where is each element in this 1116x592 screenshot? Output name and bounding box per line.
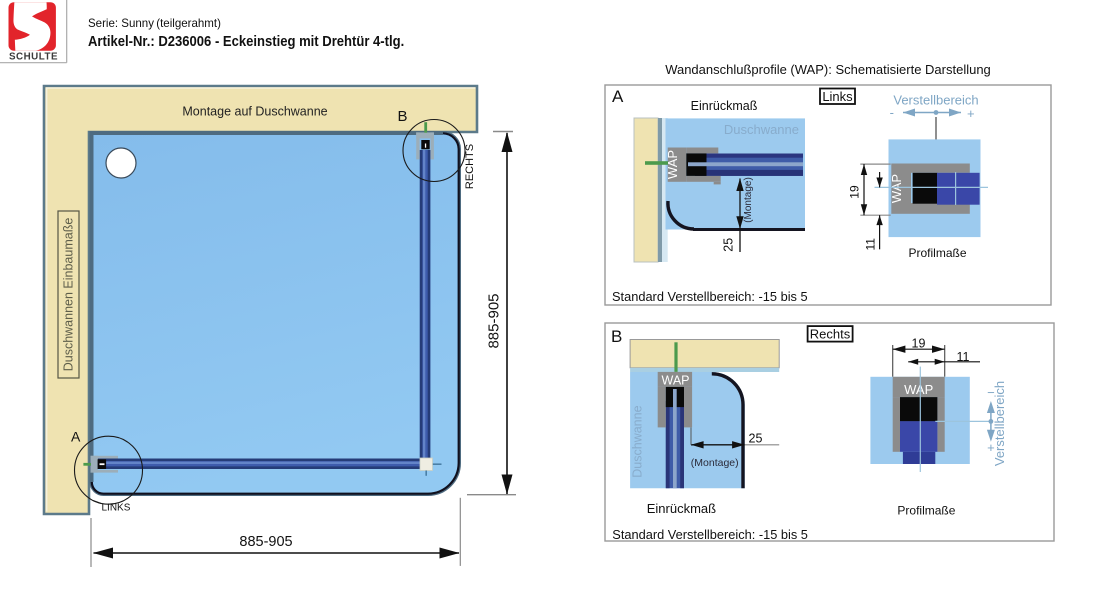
svg-text:-: - [890,105,894,120]
svg-text:RECHTS: RECHTS [464,144,476,189]
svg-text:19: 19 [912,337,926,351]
svg-text:Duschwanne: Duschwanne [724,122,799,137]
svg-text:(Montage): (Montage) [743,177,754,223]
svg-text:Verstellbereich: Verstellbereich [893,93,978,108]
svg-text:885-905: 885-905 [486,293,503,348]
svg-text:25: 25 [722,238,736,252]
svg-text:WAP: WAP [904,382,933,397]
svg-text:A: A [612,87,624,106]
svg-text:Profilmaße: Profilmaße [897,504,955,518]
svg-text:Standard Verstellbereich: -15: Standard Verstellbereich: -15 bis 5 [612,289,808,304]
svg-text:Standard Verstellbereich: -15: Standard Verstellbereich: -15 bis 5 [612,527,808,542]
svg-text:Montage auf Duschwanne: Montage auf Duschwanne [182,105,327,119]
svg-text:Profilmaße: Profilmaße [908,246,966,260]
svg-text:A: A [71,429,81,445]
svg-text:+: + [967,106,975,121]
svg-text:11: 11 [957,350,970,364]
svg-text:LINKS: LINKS [102,503,131,514]
svg-text:19: 19 [848,185,862,199]
svg-text:Duschwannen Einbaumaße: Duschwannen Einbaumaße [62,218,76,372]
svg-text:25: 25 [749,432,763,446]
svg-text:Rechts: Rechts [810,326,851,341]
svg-text:Einrückmaß: Einrückmaß [691,99,758,113]
svg-text:Einrückmaß: Einrückmaß [647,501,716,516]
svg-text:B: B [398,108,408,125]
svg-text:B: B [611,327,622,346]
svg-text:885-905: 885-905 [239,534,292,550]
svg-text:Links: Links [822,89,853,104]
svg-text:WAP: WAP [889,174,904,203]
svg-text:SCHULTE: SCHULTE [9,52,58,63]
svg-text:(Montage): (Montage) [691,457,739,469]
svg-text:WAP: WAP [661,374,689,388]
svg-text:Verstellbereich: Verstellbereich [992,381,1007,466]
svg-text:11: 11 [864,238,878,251]
svg-text:Duschwanne: Duschwanne [630,405,644,477]
